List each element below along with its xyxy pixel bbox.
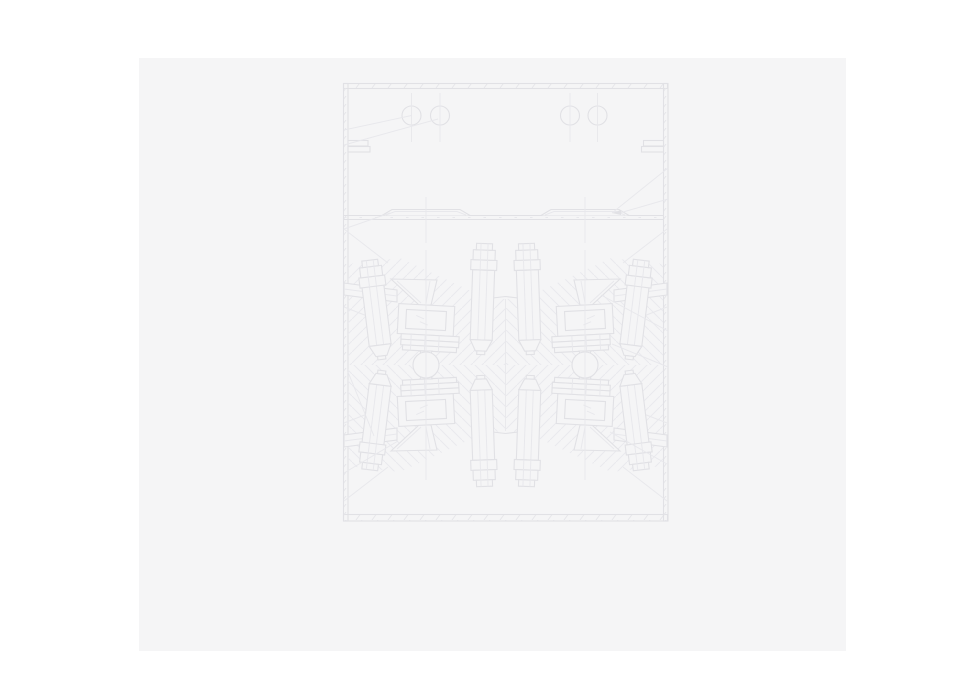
frame-top-band [344, 84, 668, 89]
bolt-head [476, 243, 492, 250]
bolt-head [516, 250, 538, 261]
bolt-head [362, 259, 379, 267]
bolt-head [516, 470, 538, 481]
die-block [550, 304, 614, 353]
bolt-shaft [516, 270, 540, 341]
die-block [396, 304, 460, 353]
bolt-shaft [470, 270, 494, 341]
bolt-shaft [470, 390, 494, 461]
bolt-head [514, 260, 540, 271]
drawing-root [139, 58, 846, 651]
die-block [396, 377, 460, 426]
bolt-head [473, 470, 495, 481]
bolt-head [518, 480, 534, 487]
bolt-head [518, 243, 534, 250]
bolt-head [471, 460, 497, 471]
bolt-head [362, 462, 379, 470]
right-wall-flange-upper [644, 141, 664, 147]
right-wall-flange-lower [642, 147, 664, 153]
bolt-head [633, 259, 650, 267]
bolt-shaft [516, 390, 540, 461]
bolt-head [633, 462, 650, 470]
bolt-head [476, 480, 492, 487]
viewer-canvas [0, 0, 961, 694]
technical-drawing [0, 0, 961, 694]
frame-right-wall [664, 84, 669, 522]
bolt-head [514, 460, 540, 471]
bolt-head [471, 260, 497, 271]
bolt-head [473, 250, 495, 261]
left-wall-flange-lower [348, 147, 370, 153]
frame-bottom-band [344, 515, 668, 522]
die-block [550, 377, 614, 426]
frame-left-wall [344, 84, 349, 522]
